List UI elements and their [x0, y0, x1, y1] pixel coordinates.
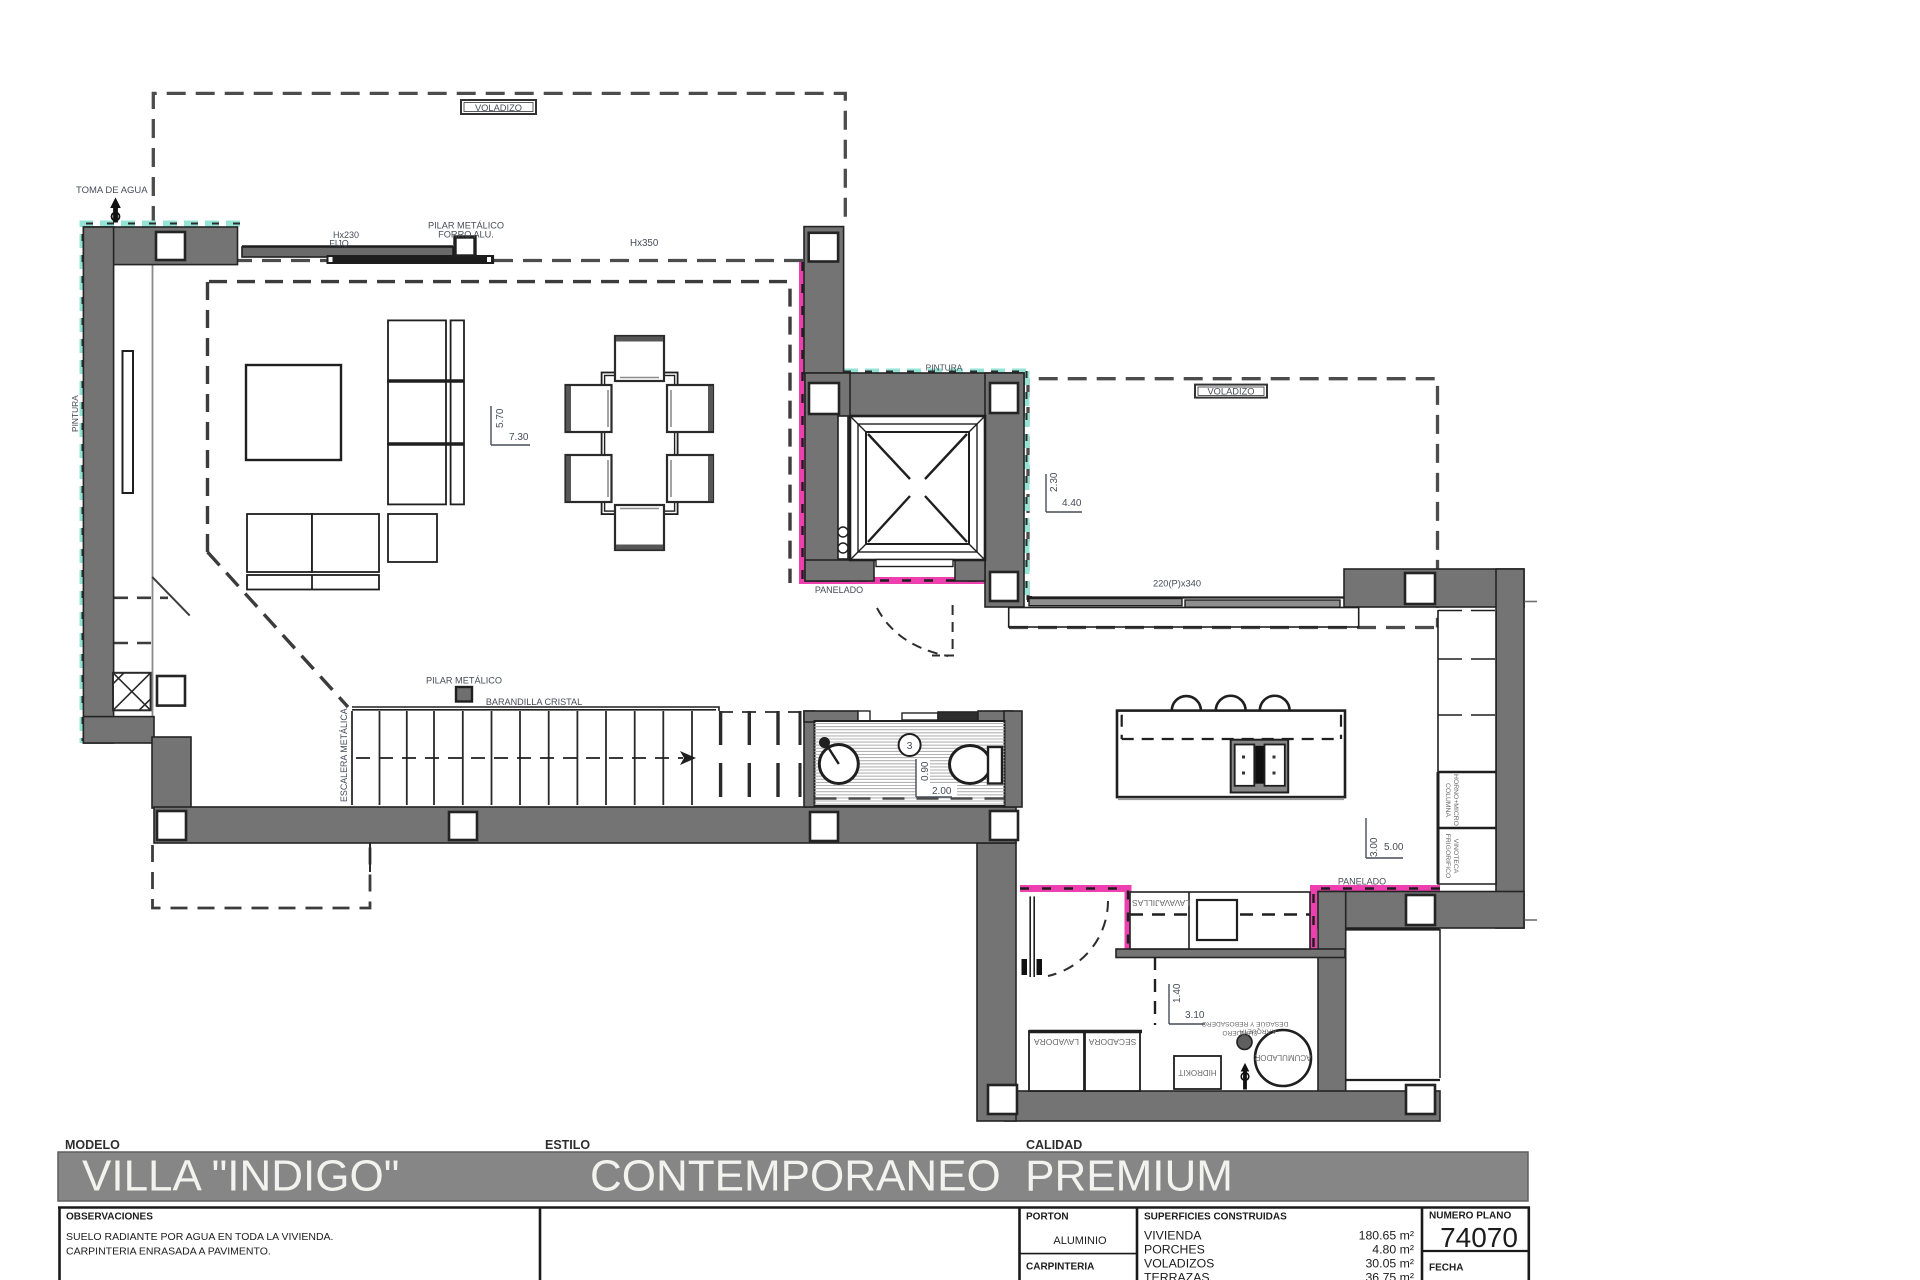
- svg-text:PINTURA: PINTURA: [926, 363, 963, 373]
- svg-text:CARPINTERIA ENRASADA A PAVIMEN: CARPINTERIA ENRASADA A PAVIMENTO.: [66, 1246, 271, 1258]
- svg-text:LAVADORA: LAVADORA: [1034, 1037, 1079, 1047]
- svg-text:SECADORA: SECADORA: [1088, 1037, 1136, 1047]
- svg-text:4.80 m²: 4.80 m²: [1372, 1243, 1414, 1257]
- svg-text:PANELADO: PANELADO: [1338, 877, 1386, 887]
- svg-text:TERRAZAS: TERRAZAS: [1144, 1271, 1210, 1280]
- svg-text:PINTURA: PINTURA: [70, 395, 80, 432]
- svg-text:36.75 m²: 36.75 m²: [1365, 1271, 1414, 1280]
- svg-text:OBSERVACIONES: OBSERVACIONES: [66, 1212, 153, 1223]
- svg-text:3.10: 3.10: [1185, 1010, 1205, 1021]
- svg-text:VOLADIZO: VOLADIZO: [475, 103, 522, 113]
- svg-text:PILAR METÁLICO: PILAR METÁLICO: [426, 676, 502, 686]
- svg-text:DESAGÜE Y REBOSADERO: DESAGÜE Y REBOSADERO: [1202, 1020, 1289, 1028]
- svg-text:HORNO+MICRO: HORNO+MICRO: [1452, 774, 1459, 826]
- svg-text:ESCALERA METÁLICA: ESCALERA METÁLICA: [339, 708, 349, 802]
- svg-text:VOLADIZO: VOLADIZO: [1207, 387, 1254, 397]
- svg-text:MODELO: MODELO: [65, 1138, 120, 1152]
- svg-text:TOMA DE AGUA: TOMA DE AGUA: [76, 185, 148, 196]
- svg-text:PORTON: PORTON: [1026, 1212, 1069, 1223]
- svg-text:SUPERFICIES CONSTRUIDAS: SUPERFICIES CONSTRUIDAS: [1144, 1212, 1287, 1223]
- svg-text:VINOTECA: VINOTECA: [1452, 839, 1459, 874]
- svg-text:FRIGORIFICO: FRIGORIFICO: [1444, 834, 1451, 879]
- svg-text:CONTEMPORANEO PREMIUM: CONTEMPORANEO PREMIUM: [590, 1152, 1233, 1201]
- svg-text:FECHA: FECHA: [1429, 1263, 1463, 1274]
- svg-text:Hx350: Hx350: [630, 238, 659, 249]
- svg-text:220(P)x340: 220(P)x340: [1153, 579, 1201, 589]
- svg-text:CARPINTERIA: CARPINTERIA: [1026, 1262, 1094, 1273]
- svg-text:0.90: 0.90: [920, 761, 931, 781]
- svg-text:74070: 74070: [1440, 1222, 1518, 1253]
- svg-text:COLUMNA: COLUMNA: [1444, 783, 1451, 817]
- svg-text:ALUMINIO: ALUMINIO: [1053, 1235, 1107, 1247]
- svg-text:5.00: 5.00: [1384, 842, 1404, 853]
- svg-text:5.70: 5.70: [495, 408, 506, 428]
- svg-text:PANELADO: PANELADO: [815, 585, 863, 595]
- svg-text:2.30: 2.30: [1049, 472, 1060, 492]
- svg-text:CALIDAD: CALIDAD: [1026, 1138, 1082, 1152]
- svg-text:2.00: 2.00: [932, 786, 952, 797]
- svg-text:30.05 m²: 30.05 m²: [1365, 1257, 1414, 1271]
- svg-text:ACUMULADOR: ACUMULADOR: [1254, 1053, 1311, 1062]
- svg-text:SUELO RADIANTE POR AGUA EN TOD: SUELO RADIANTE POR AGUA EN TODA LA VIVIE…: [66, 1231, 333, 1243]
- svg-text:NUMERO PLANO: NUMERO PLANO: [1429, 1211, 1511, 1222]
- svg-text:FORRO ALU.: FORRO ALU.: [438, 230, 494, 240]
- svg-text:3.00: 3.00: [1369, 837, 1380, 857]
- svg-text:FIJO: FIJO: [329, 239, 349, 249]
- svg-text:PORCHES: PORCHES: [1144, 1243, 1205, 1257]
- svg-text:VILLA "INDIGO": VILLA "INDIGO": [82, 1152, 399, 1201]
- svg-text:7.30: 7.30: [509, 432, 529, 443]
- svg-text:BARANDILLA CRISTAL: BARANDILLA CRISTAL: [486, 697, 582, 707]
- svg-text:VOLADIZOS: VOLADIZOS: [1144, 1257, 1214, 1271]
- svg-text:ESTILO: ESTILO: [545, 1138, 590, 1152]
- svg-text:1.40: 1.40: [1172, 983, 1183, 1003]
- svg-text:LAVAVAJILLAS: LAVAVAJILLAS: [1132, 898, 1190, 908]
- svg-text:3: 3: [907, 740, 913, 752]
- svg-text:SUMIDERO: SUMIDERO: [1222, 1029, 1257, 1036]
- svg-text:HIDROKIT: HIDROKIT: [1178, 1068, 1216, 1077]
- svg-text:4.40: 4.40: [1062, 498, 1082, 509]
- svg-text:180.65 m²: 180.65 m²: [1359, 1229, 1414, 1243]
- svg-text:VIVIENDA: VIVIENDA: [1144, 1229, 1202, 1243]
